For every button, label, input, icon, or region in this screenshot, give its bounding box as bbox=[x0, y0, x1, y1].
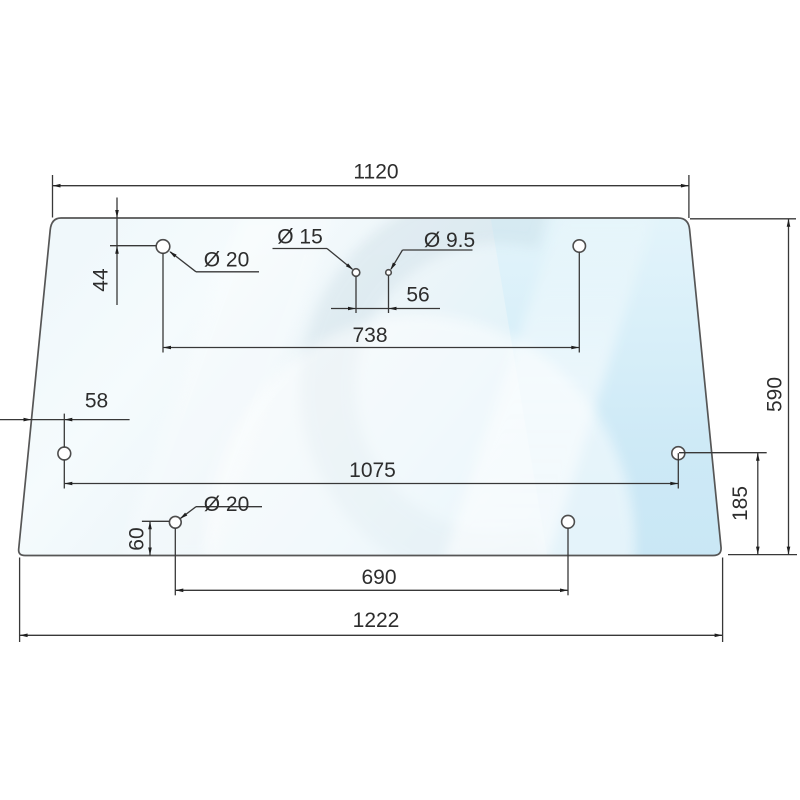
svg-text:Ø 15: Ø 15 bbox=[277, 226, 323, 249]
svg-text:56: 56 bbox=[406, 284, 429, 307]
svg-text:590: 590 bbox=[764, 377, 787, 412]
svg-text:185: 185 bbox=[729, 486, 752, 521]
svg-text:738: 738 bbox=[352, 324, 387, 347]
svg-text:1075: 1075 bbox=[349, 459, 396, 482]
svg-text:1222: 1222 bbox=[353, 609, 400, 632]
svg-text:Ø 9.5: Ø 9.5 bbox=[424, 229, 475, 252]
svg-text:Ø 20: Ø 20 bbox=[204, 249, 250, 272]
svg-text:58: 58 bbox=[85, 390, 108, 413]
svg-text:690: 690 bbox=[361, 566, 396, 589]
svg-text:44: 44 bbox=[90, 268, 113, 292]
svg-text:Ø 20: Ø 20 bbox=[204, 493, 250, 516]
svg-text:60: 60 bbox=[126, 527, 149, 550]
svg-text:1120: 1120 bbox=[353, 161, 398, 184]
